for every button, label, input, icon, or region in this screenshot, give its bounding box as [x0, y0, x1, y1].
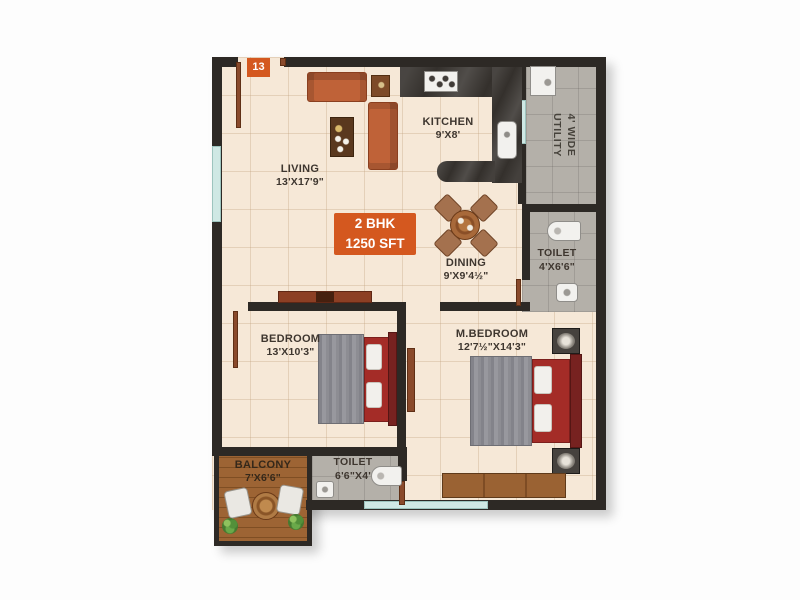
- floor-plan-canvas: 13 2 BHK 1250 SFT LIVING 13'X17'9" KITCH…: [0, 0, 800, 600]
- bed-pillow: [366, 382, 382, 408]
- wall-top-main: [284, 57, 606, 67]
- bed-pillow: [366, 344, 382, 370]
- kitchen-label: KITCHEN 9'X8': [398, 115, 498, 143]
- toilet-attached-name: TOILET: [518, 247, 596, 261]
- bedroom-name: BEDROOM: [228, 332, 353, 346]
- mbedroom-name: M.BEDROOM: [418, 327, 566, 341]
- wall-balcony-bottom: [214, 541, 312, 546]
- unit-number-badge: 13: [247, 58, 270, 77]
- tv-unit: [278, 291, 372, 303]
- bedroom-label: BEDROOM 13'X10'3": [228, 332, 353, 360]
- utility-line1: 4' WIDE: [563, 75, 577, 195]
- toilet-common-name: TOILET: [312, 456, 394, 470]
- living-label: LIVING 13'X17'9": [244, 162, 356, 190]
- balcony-name: BALCONY: [217, 458, 309, 472]
- unit-type-badge: 2 BHK 1250 SFT: [334, 213, 416, 255]
- nightstand-lamp: [552, 448, 580, 474]
- kitchen-name: KITCHEN: [398, 115, 498, 129]
- mbedroom-window: [364, 501, 488, 509]
- bedroom-size: 13'X10'3": [228, 346, 353, 360]
- coffee-table: [330, 117, 354, 157]
- wall-utility-bottom: [522, 204, 606, 212]
- dining-name: DINING: [416, 256, 516, 270]
- side-table: [371, 75, 390, 97]
- sofa-two-seater: [368, 102, 398, 170]
- living-window: [212, 146, 221, 222]
- living-name: LIVING: [244, 162, 356, 176]
- mbed-blanket: [470, 356, 532, 446]
- utility-line2: UTILITY: [550, 75, 564, 195]
- stove: [424, 71, 458, 92]
- balcony-chair: [276, 484, 304, 516]
- toilet-common-size: 6'6"X4': [312, 470, 394, 484]
- balcony-size: 7'X6'6": [217, 472, 309, 486]
- bed-headboard: [388, 332, 397, 426]
- plant: [288, 514, 304, 530]
- toilet-fixture: [547, 221, 581, 241]
- kitchen-size: 9'X8': [398, 129, 498, 143]
- living-size: 13'X17'9": [244, 176, 356, 190]
- toilet-attached-size: 4'X6'6": [518, 261, 596, 275]
- wall-right: [596, 57, 606, 510]
- wall-bedroom-right: [397, 302, 406, 447]
- dining-label: DINING 9'X9'4½": [416, 256, 516, 284]
- unit-type-line1: 2 BHK: [334, 214, 416, 234]
- wardrobe: [442, 473, 566, 498]
- washbasin: [316, 481, 334, 498]
- kitchen-sink: [497, 121, 517, 159]
- utility-label: 4' WIDE UTILITY: [543, 75, 577, 195]
- mbedroom-label: M.BEDROOM 12'7½"X14'3": [418, 327, 566, 355]
- sofa-three-seater: [307, 72, 367, 102]
- wall-bedroom-bottom: [212, 447, 312, 456]
- mbedroom-size: 12'7½"X14'3": [418, 341, 566, 355]
- dining-size: 9'X9'4½": [416, 270, 516, 284]
- wall-left: [212, 57, 222, 448]
- mbed-pillow: [534, 366, 552, 394]
- entry-door: [236, 62, 241, 128]
- toilet-attached-label: TOILET 4'X6'6": [518, 247, 596, 274]
- wall-toilet-common-top: [312, 447, 404, 456]
- washbasin: [556, 283, 578, 302]
- mbedroom-door: [407, 348, 415, 412]
- mbed-pillow: [534, 404, 552, 432]
- dining-table: [450, 210, 480, 240]
- toilet-common-label: TOILET 6'6"X4': [312, 456, 394, 483]
- mbed-headboard: [570, 354, 582, 448]
- kitchen-counter-bottom: [437, 161, 495, 182]
- unit-type-line2: 1250 SFT: [334, 234, 416, 254]
- toilet-attached-door: [516, 279, 521, 306]
- balcony-label: BALCONY 7'X6'6": [217, 458, 309, 486]
- wall-living-bedroom: [248, 302, 405, 311]
- entry-door-frame: [280, 58, 286, 66]
- plant: [222, 518, 238, 534]
